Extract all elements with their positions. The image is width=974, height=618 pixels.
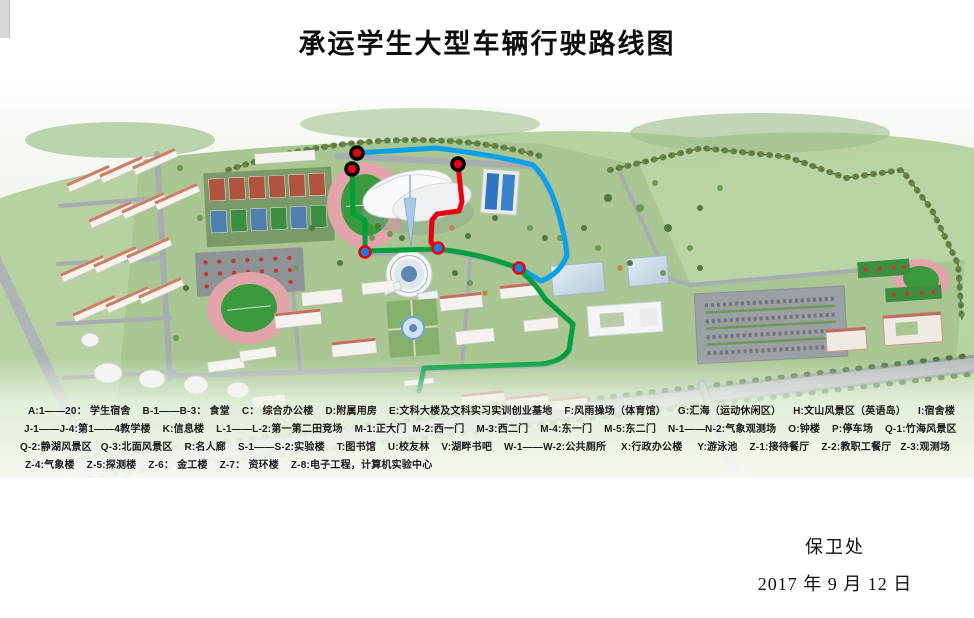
legend-line-1: A:1——20： 学生宿舍 B-1——B-3： 食堂 C： 综合办公楼 D:附属… bbox=[0, 402, 974, 417]
legend-line-2: J-1——J-4:第1——4教学楼 K:信息楼 L-1——L-2:第一第二田竞场… bbox=[0, 420, 974, 435]
admin-office-complex bbox=[587, 301, 663, 336]
campus-map-svg bbox=[0, 78, 974, 478]
route-end-marker-red bbox=[433, 243, 444, 254]
footer-department: 保卫处 bbox=[700, 533, 970, 559]
route-start-marker-blue bbox=[351, 147, 363, 159]
route-map-poster: 承运学生大型车辆行驶路线图 bbox=[0, 0, 974, 618]
route-end-marker-blue bbox=[514, 263, 525, 274]
basketball-courts bbox=[203, 167, 335, 248]
route-start-marker-green bbox=[346, 163, 358, 175]
legend-line-3: Q-2:静湖风景区 Q-3:北面风景区 R:名人廊 S-1——S-2:实验楼 T… bbox=[0, 438, 974, 453]
parking-lot bbox=[694, 286, 847, 364]
page-title: 承运学生大型车辆行驶路线图 bbox=[0, 22, 974, 61]
route-end-marker-green bbox=[360, 247, 371, 258]
central-garden bbox=[386, 298, 440, 357]
route-start-marker-red bbox=[452, 158, 464, 170]
campus-aerial-map bbox=[0, 78, 974, 478]
legend-line-4: Z-4:气象楼 Z-5:探测楼 Z-6： 金工楼 Z-7： 资环楼 Z-8:电子… bbox=[0, 456, 974, 471]
swimming-pools bbox=[480, 169, 519, 215]
footer-date: 2017 年 9 月 12 日 bbox=[700, 570, 970, 596]
